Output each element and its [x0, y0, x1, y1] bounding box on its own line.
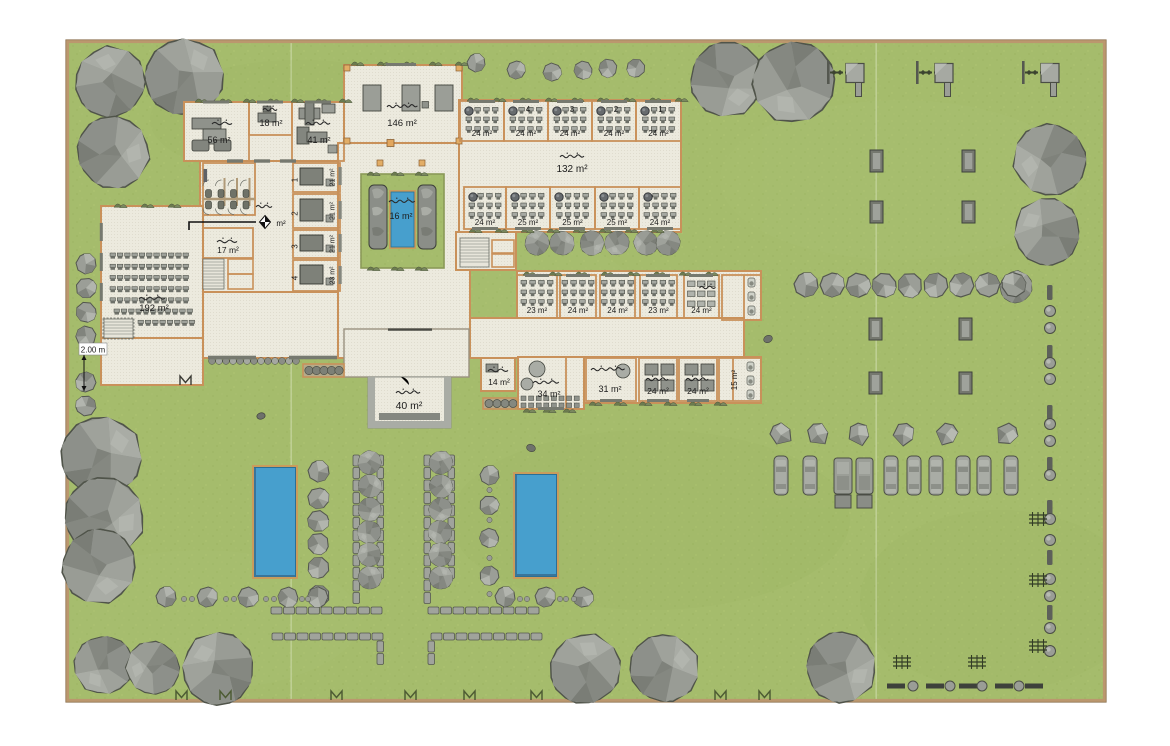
svg-text:4: 4	[526, 105, 531, 114]
svg-text:31 m²: 31 m²	[598, 384, 621, 394]
svg-text:2: 2	[614, 105, 619, 114]
svg-text:14 m²: 14 m²	[488, 377, 510, 387]
svg-text:m²: m²	[276, 219, 286, 228]
svg-text:2: 2	[291, 211, 300, 216]
svg-text:4: 4	[291, 275, 300, 280]
svg-text:40 m²: 40 m²	[396, 400, 423, 412]
svg-text:3: 3	[570, 105, 575, 114]
svg-text:21 m²: 21 m²	[330, 234, 337, 253]
svg-text:24 m²: 24 m²	[568, 306, 589, 315]
svg-text:146 m²: 146 m²	[387, 118, 417, 129]
svg-text:24 m²: 24 m²	[648, 129, 669, 138]
svg-text:2.00 m: 2.00 m	[81, 346, 106, 355]
svg-text:24 m²: 24 m²	[607, 306, 628, 315]
svg-text:24 m²: 24 m²	[691, 306, 712, 315]
svg-text:18 m²: 18 m²	[259, 118, 282, 128]
svg-text:23 m²: 23 m²	[330, 266, 337, 285]
svg-text:21 m²: 21 m²	[330, 168, 337, 187]
svg-text:24 m²: 24 m²	[560, 129, 581, 138]
svg-text:25 m²: 25 m²	[607, 218, 628, 227]
svg-text:24 m²: 24 m²	[516, 129, 537, 138]
svg-text:41 m²: 41 m²	[307, 135, 330, 145]
svg-text:23 m²: 23 m²	[527, 306, 548, 315]
svg-text:25 m²: 25 m²	[562, 218, 583, 227]
svg-text:17 m²: 17 m²	[217, 245, 239, 255]
svg-text:24 m²: 24 m²	[472, 129, 493, 138]
svg-text:16 m²: 16 m²	[389, 211, 412, 221]
svg-text:24 m²: 24 m²	[475, 218, 496, 227]
svg-text:25 m²: 25 m²	[518, 218, 539, 227]
svg-text:21 m²: 21 m²	[330, 201, 337, 220]
svg-text:15 m²: 15 m²	[730, 369, 739, 390]
svg-text:24 m²: 24 m²	[650, 218, 671, 227]
svg-text:24 m²: 24 m²	[604, 129, 625, 138]
svg-text:132 m²: 132 m²	[556, 164, 588, 175]
svg-text:56 m²: 56 m²	[207, 135, 230, 145]
svg-text:3: 3	[291, 244, 300, 249]
svg-text:24 m²: 24 m²	[647, 386, 669, 396]
svg-text:192 m²: 192 m²	[139, 303, 169, 314]
svg-text:1: 1	[658, 105, 663, 114]
svg-text:24 m²: 24 m²	[687, 386, 709, 396]
svg-text:23 m²: 23 m²	[648, 306, 669, 315]
svg-text:1: 1	[291, 177, 300, 182]
svg-text:34 m²: 34 m²	[537, 389, 560, 399]
